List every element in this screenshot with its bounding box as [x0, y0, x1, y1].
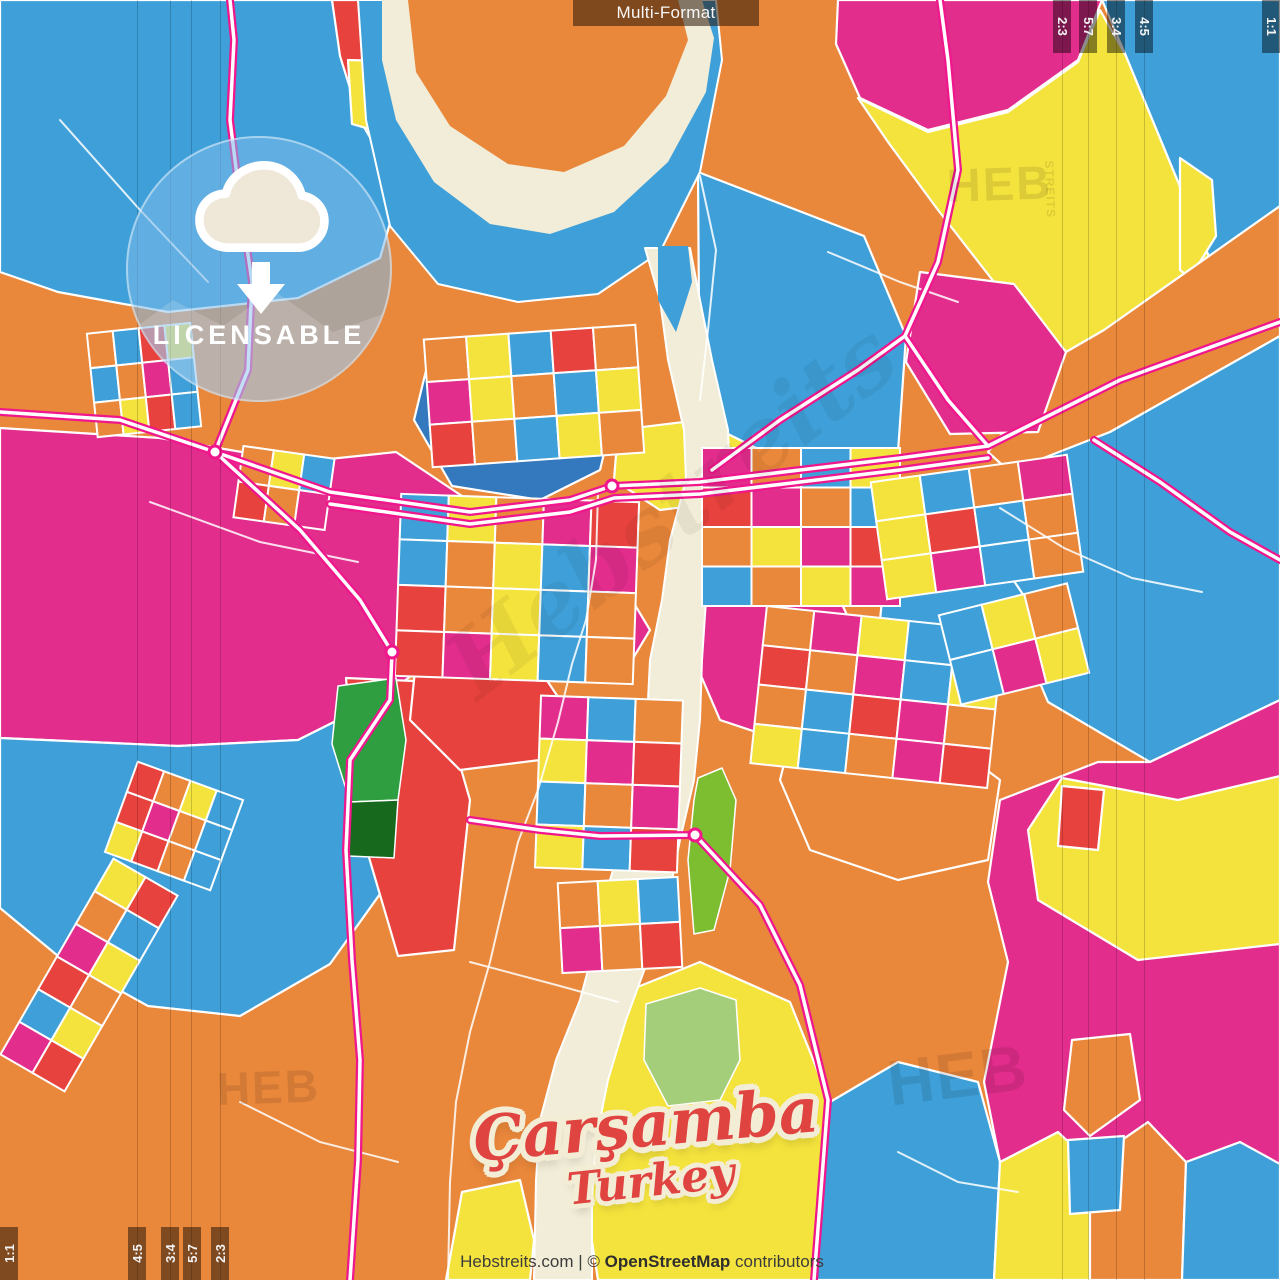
aspect-ratio-marker-2-3: 2:3: [211, 1227, 229, 1280]
aspect-ratio-label: 1:1: [1264, 17, 1279, 36]
aspect-ratio-label: 4:5: [1137, 17, 1152, 36]
aspect-ratio-marker-1-1: 1:1: [1262, 0, 1280, 53]
crop-guide-line: [1088, 0, 1089, 1280]
aspect-ratio-marker-3-4: 3:4: [1107, 0, 1125, 53]
aspect-ratio-label: 5:7: [1081, 17, 1096, 36]
aspect-ratio-marker-4-5: 4:5: [1135, 0, 1153, 53]
aspect-ratio-label: 4:5: [130, 1244, 145, 1263]
attribution-contributors: contributors: [730, 1252, 824, 1271]
aspect-ratio-marker-2-3: 2:3: [1053, 0, 1071, 53]
aspect-ratio-marker-4-5: 4:5: [128, 1227, 146, 1280]
aspect-ratio-marker-5-7: 5:7: [1079, 0, 1097, 53]
aspect-ratio-label: 5:7: [185, 1244, 200, 1263]
aspect-ratio-label: 2:3: [1055, 17, 1070, 36]
hebstreits-watermark: HEB: [884, 1035, 1032, 1116]
aspect-ratio-marker-3-4: 3:4: [161, 1227, 179, 1280]
download-arrow-icon: [231, 262, 291, 316]
cloud-download-icon: [189, 154, 333, 258]
crop-guide-line: [1062, 0, 1063, 1280]
hebstreits-watermark: HEB: [216, 1062, 321, 1112]
aspect-ratio-label: 2:3: [213, 1244, 228, 1263]
licensable-badge: LICENSABLE: [126, 136, 392, 402]
attribution: Hebstreits.com | © OpenStreetMap contrib…: [460, 1252, 824, 1272]
crop-guide-line: [1144, 0, 1145, 1280]
aspect-ratio-label: 3:4: [163, 1244, 178, 1263]
watermark-small-text: STREITS: [1043, 160, 1057, 218]
hebstreits-watermark: HEBSTREITS: [946, 156, 1110, 209]
format-bar-label: Multi-Format: [617, 3, 716, 22]
format-bar: Multi-Format: [573, 0, 759, 26]
attribution-site: Hebstreits.com: [460, 1252, 573, 1271]
aspect-ratio-label: 3:4: [1109, 17, 1124, 36]
attribution-copyright: ©: [587, 1252, 604, 1271]
licensable-label: LICENSABLE: [128, 320, 390, 351]
attribution-separator: |: [574, 1252, 588, 1271]
aspect-ratio-label: 1:1: [2, 1244, 17, 1263]
crop-guide-line: [1116, 0, 1117, 1280]
attribution-osm: OpenStreetMap: [605, 1252, 731, 1271]
map-poster: Multi-Format 2:35:73:44:51:11:14:53:45:7…: [0, 0, 1280, 1280]
aspect-ratio-marker-1-1: 1:1: [0, 1227, 18, 1280]
aspect-ratio-marker-5-7: 5:7: [183, 1227, 201, 1280]
